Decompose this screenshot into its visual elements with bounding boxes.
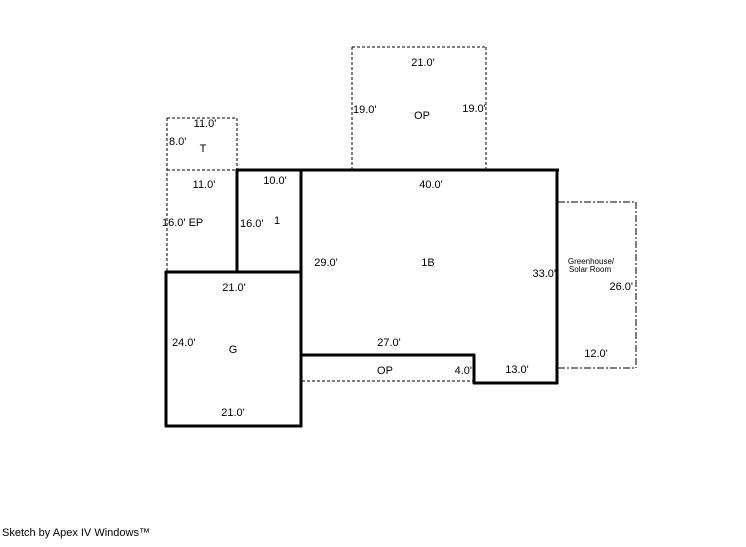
dim-op-top-right-height: 19.0'	[462, 103, 486, 115]
op-top-labels: 21.0' 19.0' OP 19.0'	[353, 57, 486, 122]
dim-op-bottom-width: 27.0'	[377, 337, 401, 349]
dim-t-height: 8.0'	[169, 136, 186, 148]
dim-greenhouse-height: 26.0'	[609, 281, 633, 293]
dim-ep-width: 11.0'	[193, 179, 216, 191]
floor-plan-sketch: 21.0' 19.0' OP 19.0' 11.0' 8.0' T 11.0' …	[0, 0, 746, 547]
area-label-op-bottom: OP	[377, 365, 393, 377]
t-area-labels: 11.0' 8.0' T	[169, 118, 216, 155]
sketch-canvas: 21.0' 19.0' OP 19.0' 11.0' 8.0' T 11.0' …	[0, 0, 746, 547]
dashed-outlines	[167, 47, 486, 381]
dim-1b-right-height: 33.0'	[532, 268, 556, 280]
dim-bottom-right-width: 13.0'	[505, 364, 529, 376]
dim-area1-width: 10.0'	[263, 175, 287, 187]
solid-walls	[165, 169, 559, 427]
dim-1b-left-height: 29.0'	[314, 257, 338, 269]
dim-op-top-width: 21.0'	[411, 57, 435, 69]
area-label-1b: 1B	[421, 257, 434, 269]
dim-op-top-left-height: 19.0'	[353, 104, 377, 116]
op-bottom-labels: 27.0' OP 4.0' 13.0'	[377, 337, 529, 377]
dim-area1-height: 16.0'	[240, 218, 264, 230]
dim-greenhouse-width: 12.0'	[584, 348, 608, 360]
area-label-1: 1	[274, 215, 280, 227]
dim-garage-width-bottom: 21.0'	[221, 407, 245, 419]
area1-labels: 10.0' 16.0' 1	[240, 175, 287, 230]
dim-garage-height: 24.0'	[172, 337, 196, 349]
dim-t-width: 11.0'	[194, 118, 217, 130]
dim-1b-width: 40.0'	[419, 179, 443, 191]
area-label-op-top: OP	[414, 110, 430, 122]
area-label-t: T	[200, 143, 207, 155]
footer-credit: Sketch by Apex IV Windows™	[2, 527, 150, 539]
dim-op-bottom-step: 4.0'	[455, 365, 472, 377]
greenhouse-labels: Greenhouse/ Solar Room 26.0' 12.0'	[568, 257, 633, 360]
dim-ep-height-and-label: 16.0' EP	[162, 217, 203, 229]
area-label-greenhouse-line2: Solar Room	[569, 265, 612, 274]
ep-area-labels: 11.0' 16.0' EP	[162, 179, 215, 229]
main-area-labels: 40.0' 29.0' 1B 33.0'	[314, 179, 556, 280]
area-label-g: G	[229, 344, 238, 356]
garage-labels: 21.0' 24.0' G 21.0'	[172, 282, 246, 419]
dim-garage-width-top: 21.0'	[222, 282, 246, 294]
